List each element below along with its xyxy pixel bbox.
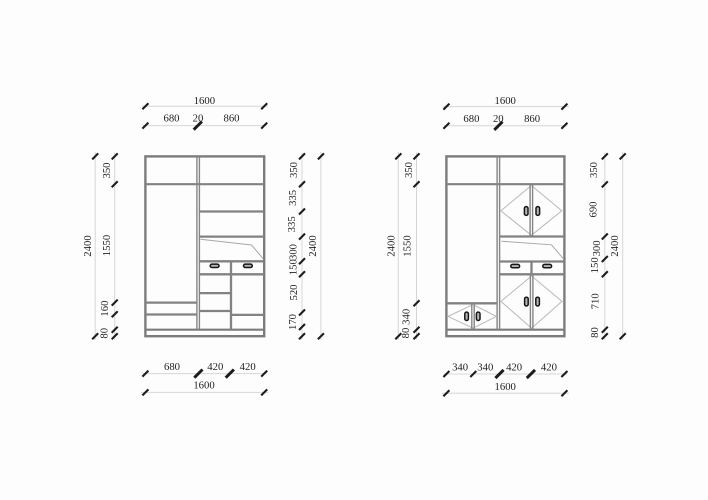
svg-text:170: 170	[287, 314, 299, 330]
svg-text:2400: 2400	[82, 235, 94, 256]
svg-text:300: 300	[591, 240, 603, 256]
svg-text:860: 860	[524, 113, 540, 125]
svg-text:680: 680	[164, 361, 180, 373]
svg-text:2400: 2400	[307, 235, 319, 256]
svg-text:420: 420	[541, 362, 557, 374]
svg-text:420: 420	[207, 361, 223, 373]
svg-text:160: 160	[99, 301, 111, 317]
svg-text:150: 150	[589, 257, 601, 273]
svg-text:335: 335	[287, 190, 299, 206]
svg-text:1600: 1600	[495, 381, 516, 393]
svg-text:335: 335	[286, 216, 298, 232]
svg-text:80: 80	[400, 328, 412, 339]
svg-text:1550: 1550	[101, 235, 113, 256]
svg-text:350: 350	[288, 162, 300, 178]
svg-text:20: 20	[193, 112, 204, 124]
svg-text:680: 680	[463, 113, 479, 125]
svg-text:20: 20	[493, 113, 504, 125]
svg-text:350: 350	[403, 162, 415, 178]
svg-text:680: 680	[163, 112, 179, 124]
svg-text:860: 860	[223, 112, 239, 124]
svg-text:420: 420	[506, 362, 522, 374]
svg-text:350: 350	[588, 162, 600, 178]
svg-text:1600: 1600	[193, 379, 214, 391]
svg-text:150: 150	[287, 259, 299, 275]
svg-text:2400: 2400	[385, 235, 397, 256]
svg-text:1550: 1550	[402, 235, 414, 256]
svg-text:340: 340	[477, 362, 493, 374]
svg-text:1600: 1600	[194, 95, 215, 107]
svg-text:420: 420	[240, 361, 256, 373]
svg-text:300: 300	[287, 244, 299, 260]
svg-text:520: 520	[288, 284, 300, 300]
svg-text:1600: 1600	[495, 95, 516, 107]
svg-text:350: 350	[101, 162, 113, 178]
svg-text:340: 340	[400, 309, 412, 325]
svg-text:80: 80	[589, 327, 601, 338]
svg-text:2400: 2400	[609, 235, 621, 256]
svg-text:340: 340	[452, 362, 468, 374]
svg-text:690: 690	[588, 201, 600, 217]
svg-text:710: 710	[590, 293, 602, 309]
svg-text:80: 80	[98, 328, 110, 339]
